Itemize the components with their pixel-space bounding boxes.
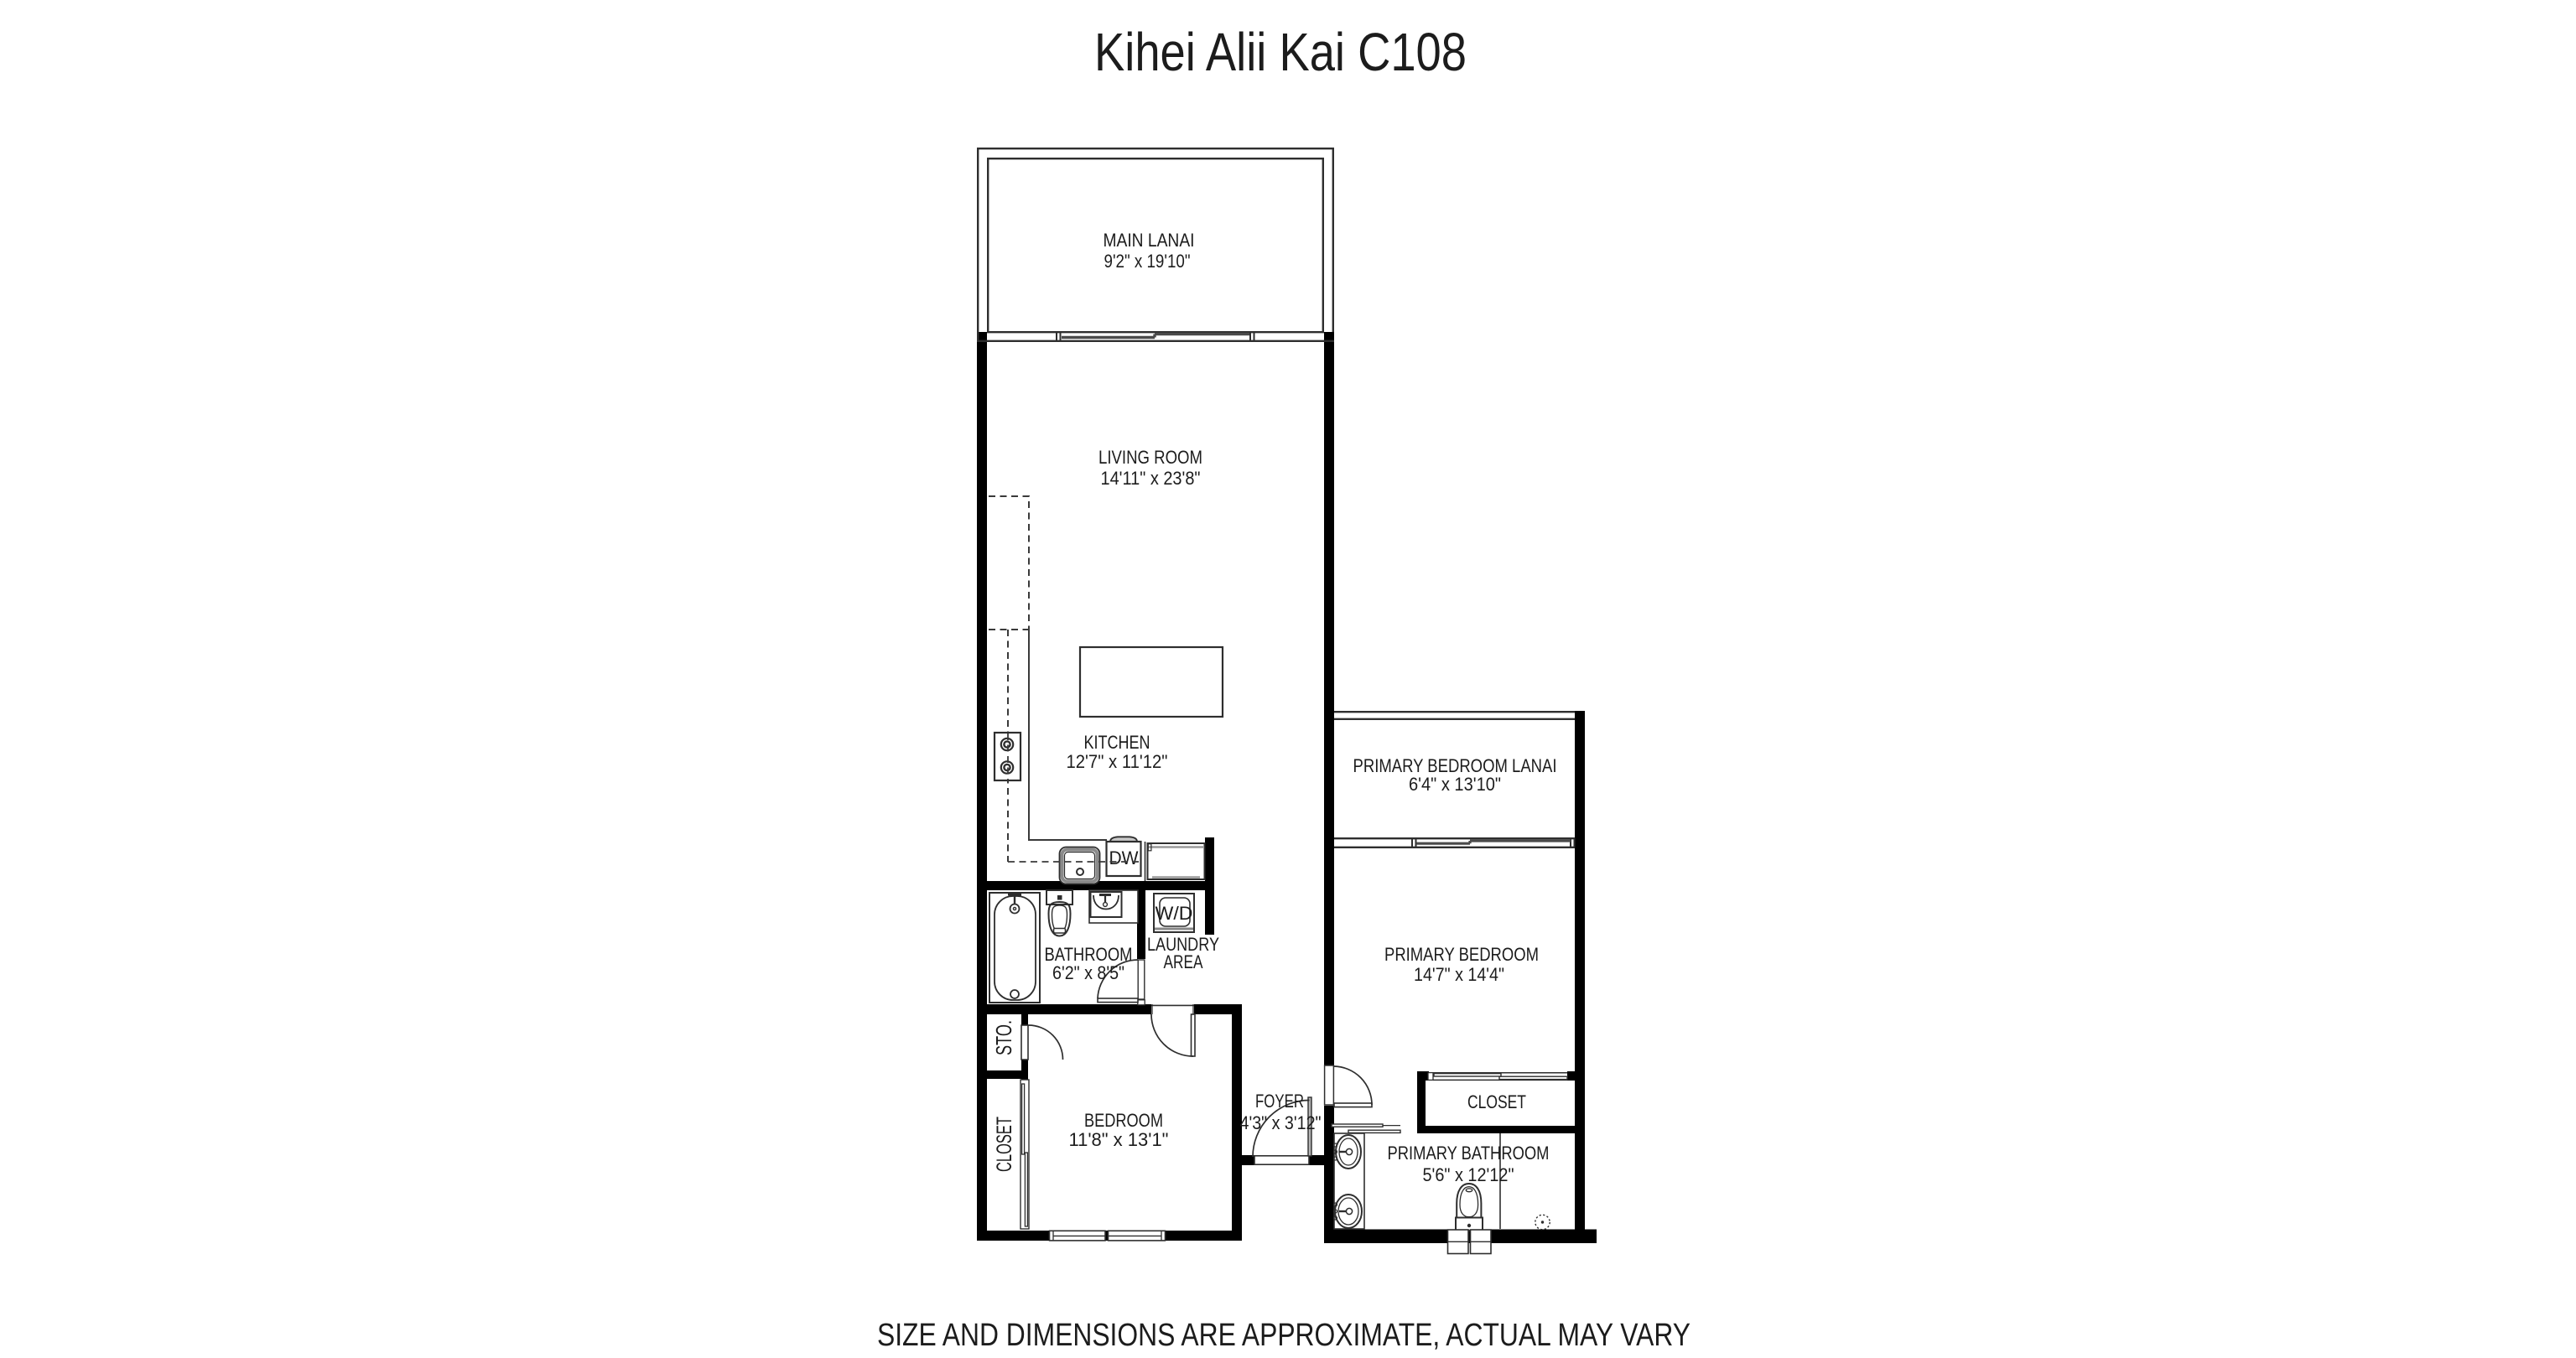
svg-text:SIZE AND DIMENSIONS ARE APPROX: SIZE AND DIMENSIONS ARE APPROXIMATE, ACT… bbox=[877, 1318, 1690, 1353]
svg-text:CLOSET: CLOSET bbox=[993, 1117, 1016, 1172]
svg-text:W/D: W/D bbox=[1156, 903, 1193, 924]
svg-text:DW: DW bbox=[1109, 847, 1139, 868]
svg-text:11'8" x 13'1": 11'8" x 13'1" bbox=[1069, 1129, 1169, 1150]
svg-text:5'6" x 12'12": 5'6" x 12'12" bbox=[1423, 1164, 1514, 1185]
svg-text:AREA: AREA bbox=[1164, 951, 1203, 972]
svg-text:14'7" x 14'4": 14'7" x 14'4" bbox=[1414, 964, 1504, 985]
svg-text:12'7" x 11'12": 12'7" x 11'12" bbox=[1067, 751, 1168, 772]
svg-text:BEDROOM: BEDROOM bbox=[1084, 1110, 1163, 1131]
svg-text:Kihei Alii Kai C108: Kihei Alii Kai C108 bbox=[1094, 22, 1467, 82]
svg-text:STO.: STO. bbox=[993, 1020, 1016, 1055]
svg-text:14'11" x 23'8": 14'11" x 23'8" bbox=[1101, 468, 1201, 489]
svg-text:6'2" x 8'5": 6'2" x 8'5" bbox=[1052, 962, 1124, 983]
svg-text:MAIN LANAI: MAIN LANAI bbox=[1104, 230, 1195, 251]
svg-text:PRIMARY BATHROOM: PRIMARY BATHROOM bbox=[1388, 1143, 1550, 1164]
svg-text:CLOSET: CLOSET bbox=[1467, 1091, 1526, 1112]
svg-text:KITCHEN: KITCHEN bbox=[1084, 732, 1150, 753]
svg-text:9'2" x 19'10": 9'2" x 19'10" bbox=[1104, 251, 1191, 272]
svg-text:6'4" x 13'10": 6'4" x 13'10" bbox=[1409, 774, 1501, 795]
svg-text:LIVING ROOM: LIVING ROOM bbox=[1098, 447, 1202, 468]
svg-text:PRIMARY BEDROOM: PRIMARY BEDROOM bbox=[1384, 944, 1539, 965]
svg-text:4'3" x 3'12": 4'3" x 3'12" bbox=[1240, 1112, 1322, 1133]
svg-text:FOYER: FOYER bbox=[1255, 1091, 1304, 1112]
